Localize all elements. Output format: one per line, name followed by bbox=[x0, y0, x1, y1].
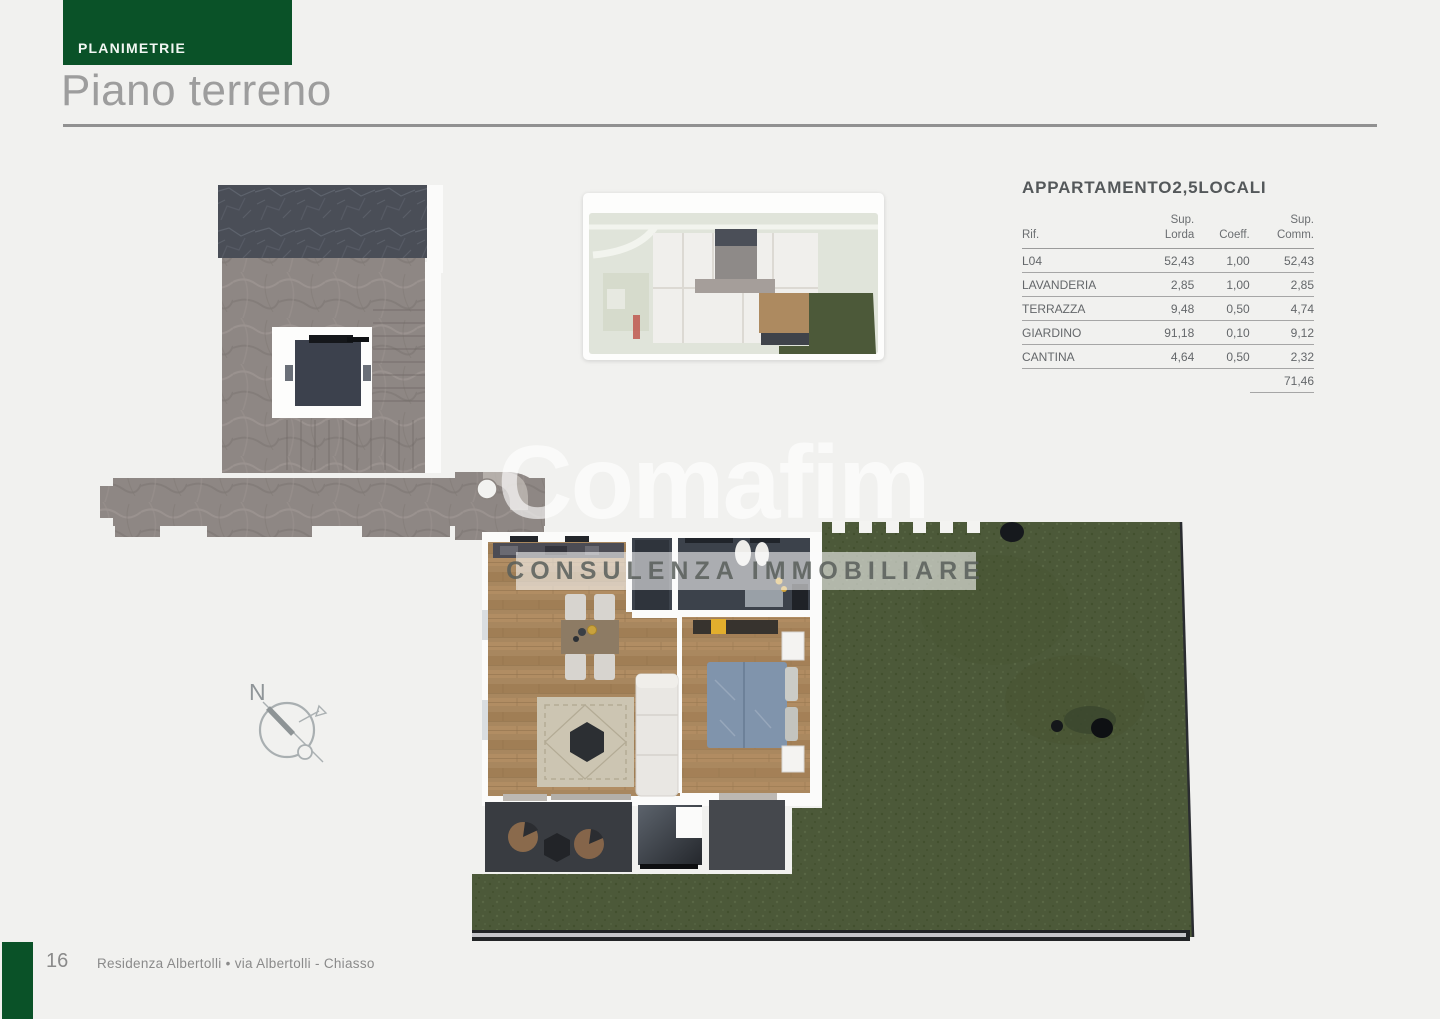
garden-hole bbox=[1000, 522, 1024, 542]
garden-wall-bottom bbox=[472, 930, 1190, 941]
window bbox=[565, 536, 589, 542]
apartment-title: APPARTAMENTO2,5LOCALI bbox=[1022, 178, 1314, 198]
compass-needle bbox=[268, 708, 293, 734]
table-total-row: 71,46 bbox=[1022, 368, 1314, 392]
window bbox=[482, 610, 488, 640]
entrance-marker bbox=[633, 315, 640, 339]
table-total: 71,46 bbox=[1250, 368, 1314, 392]
table-row: L04 52,43 1,00 52,43 bbox=[1022, 248, 1314, 272]
window bbox=[510, 536, 538, 542]
col-header-coeff: Coeff. bbox=[1194, 213, 1249, 248]
page-number: 16 bbox=[46, 950, 68, 973]
nightstand bbox=[782, 746, 804, 772]
footer-accent-bar bbox=[2, 942, 33, 1019]
col-header-lorda: Sup. Lorda bbox=[1130, 213, 1194, 248]
bidet bbox=[755, 542, 769, 566]
compass-north-label: N bbox=[249, 679, 266, 705]
section-tag: PLANIMETRIE bbox=[63, 0, 292, 65]
col-header-rif: Rif. bbox=[1022, 213, 1130, 248]
garden-hole bbox=[1091, 718, 1113, 738]
kitchen bbox=[493, 543, 624, 558]
section-tag-label: PLANIMETRIE bbox=[63, 40, 186, 65]
key-plan bbox=[583, 193, 884, 360]
garden-hole bbox=[1051, 720, 1063, 732]
surface-table-panel: APPARTAMENTO2,5LOCALI Rif. Sup. Lorda Co… bbox=[1022, 178, 1314, 393]
page-title: Piano terreno bbox=[61, 66, 332, 116]
pillow bbox=[785, 707, 798, 741]
bed bbox=[707, 662, 787, 748]
brochure-page: PLANIMETRIE Piano terreno bbox=[0, 0, 1440, 1019]
bedroom bbox=[677, 617, 810, 793]
bathroom bbox=[632, 538, 810, 612]
surface-table: Rif. Sup. Lorda Coeff. Sup. Comm. L04 52… bbox=[1022, 213, 1314, 393]
toilet bbox=[735, 540, 751, 566]
driveway bbox=[455, 472, 544, 540]
nightstand bbox=[782, 632, 804, 660]
highlighted-unit bbox=[759, 293, 876, 354]
sofa bbox=[636, 674, 678, 796]
footer-project: Residenza Albertolli • via Albertolli - … bbox=[97, 956, 375, 971]
header-divider bbox=[63, 124, 1377, 127]
wardrobe bbox=[693, 620, 778, 634]
window bbox=[482, 700, 488, 740]
col-header-comm: Sup. Comm. bbox=[1250, 213, 1314, 248]
wall bbox=[427, 185, 443, 273]
table-row: LAVANDERIA 2,85 1,00 2,85 bbox=[1022, 272, 1314, 296]
pillow bbox=[785, 667, 798, 701]
wall bbox=[425, 262, 441, 473]
washing-machine bbox=[792, 584, 808, 610]
table-row: CANTINA 4,64 0,50 2,32 bbox=[1022, 344, 1314, 368]
stool bbox=[711, 619, 726, 634]
table-row: TERRAZZA 9,48 0,50 4,74 bbox=[1022, 296, 1314, 320]
compass: N bbox=[235, 668, 335, 773]
elevator bbox=[272, 327, 372, 418]
entrance-canopy bbox=[218, 185, 427, 258]
key-plan-card bbox=[583, 193, 884, 360]
table-row: GIARDINO 91,18 0,10 9,12 bbox=[1022, 320, 1314, 344]
